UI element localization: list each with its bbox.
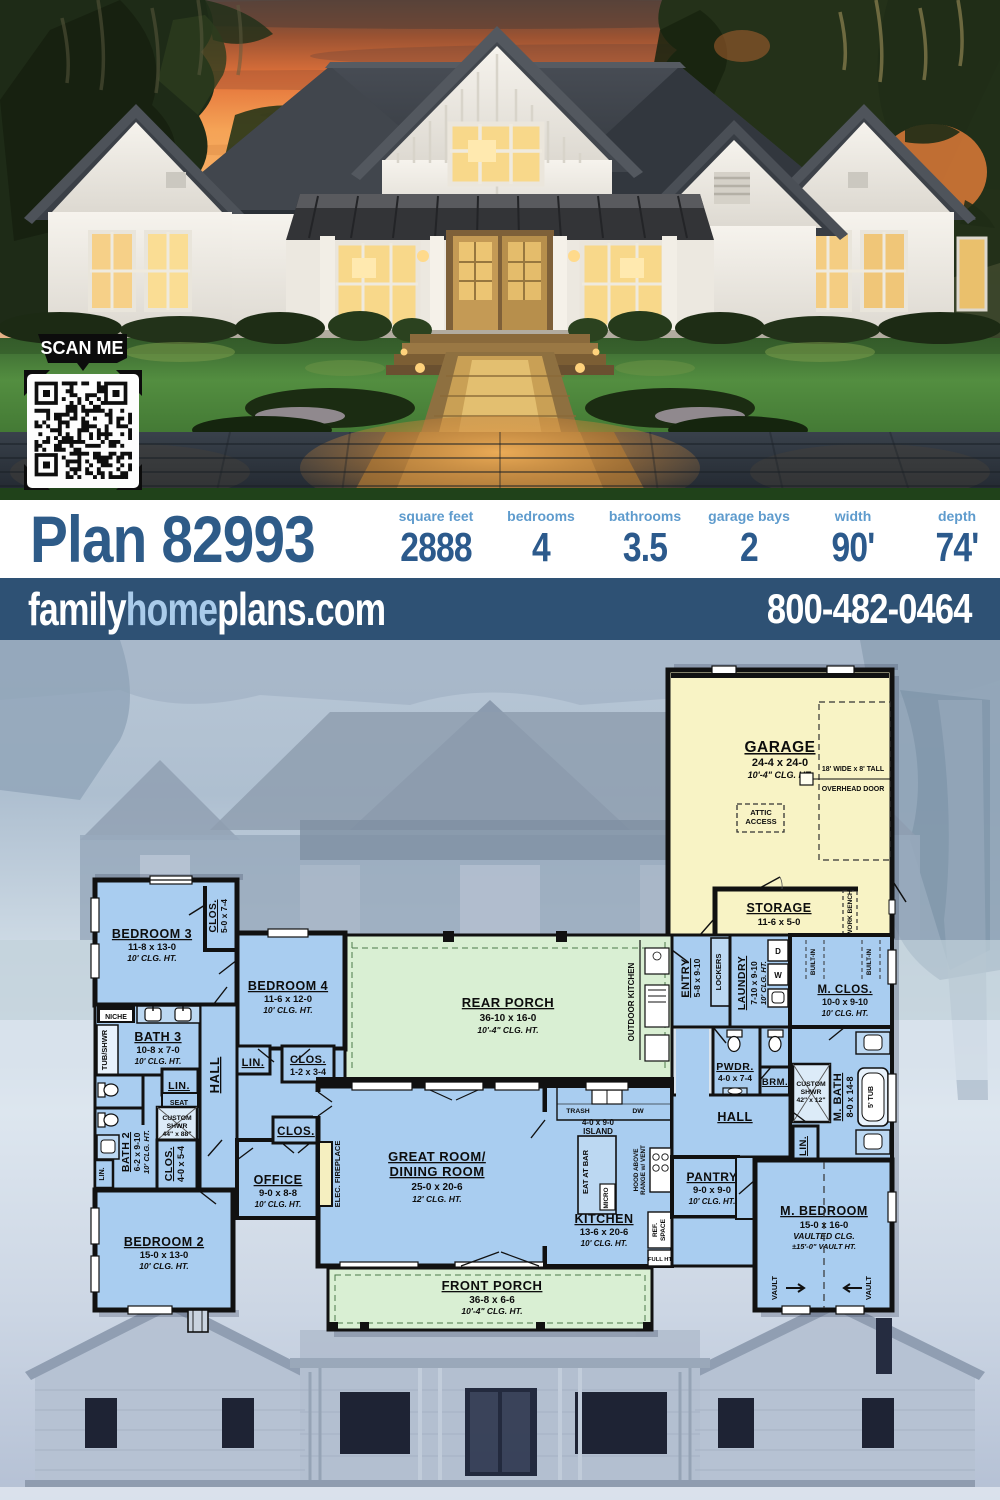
- svg-text:36-8 x 6-6: 36-8 x 6-6: [469, 1295, 515, 1306]
- svg-text:OFFICE: OFFICE: [254, 1173, 303, 1187]
- svg-text:PANTRY: PANTRY: [687, 1170, 738, 1184]
- svg-text:5-0 x 7-4: 5-0 x 7-4: [219, 899, 229, 933]
- svg-text:LIN.: LIN.: [242, 1057, 265, 1069]
- svg-text:MICRO: MICRO: [603, 1187, 610, 1208]
- svg-text:13-6 x 20-6: 13-6 x 20-6: [580, 1227, 629, 1238]
- svg-text:5' TUB: 5' TUB: [868, 1086, 875, 1108]
- svg-text:REF.: REF.: [652, 1223, 659, 1237]
- svg-text:BEDROOM 2: BEDROOM 2: [124, 1235, 204, 1249]
- svg-text:10'-4" CLG. HT.: 10'-4" CLG. HT.: [477, 1025, 538, 1035]
- svg-text:5-8 x 9-10: 5-8 x 9-10: [692, 958, 702, 997]
- svg-text:LIN.: LIN.: [99, 1167, 106, 1180]
- svg-text:6-2 x 9-10: 6-2 x 9-10: [132, 1132, 142, 1171]
- svg-text:10' CLG. HT.: 10' CLG. HT.: [135, 1057, 182, 1066]
- svg-text:STORAGE: STORAGE: [746, 901, 811, 915]
- svg-text:PWDR.: PWDR.: [716, 1061, 754, 1073]
- svg-text:7-10 x 9-10: 7-10 x 9-10: [749, 961, 759, 1005]
- svg-text:EAT AT BAR: EAT AT BAR: [581, 1149, 590, 1194]
- svg-text:FRONT PORCH: FRONT PORCH: [442, 1278, 543, 1293]
- svg-text:HOOD ABOVE: HOOD ABOVE: [633, 1149, 640, 1192]
- svg-text:WORK BENCH: WORK BENCH: [847, 890, 854, 936]
- svg-text:10' CLG. HT.: 10' CLG. HT.: [139, 1261, 189, 1271]
- svg-text:TRASH: TRASH: [566, 1108, 590, 1115]
- svg-text:BATH 3: BATH 3: [134, 1030, 181, 1044]
- svg-text:SHWR: SHWR: [801, 1089, 822, 1096]
- svg-text:10' CLG. HT.: 10' CLG. HT.: [822, 1009, 869, 1018]
- svg-text:4-0 x 5-4: 4-0 x 5-4: [176, 1146, 186, 1182]
- svg-text:36-10 x 16-0: 36-10 x 16-0: [480, 1013, 537, 1024]
- svg-text:REAR PORCH: REAR PORCH: [462, 995, 554, 1010]
- svg-text:GREAT ROOM/: GREAT ROOM/: [388, 1149, 486, 1164]
- svg-text:BATH 2: BATH 2: [120, 1132, 132, 1172]
- svg-text:42" x 12": 42" x 12": [796, 1097, 825, 1104]
- svg-text:10' CLG. HT.: 10' CLG. HT.: [255, 1200, 302, 1209]
- svg-text:CLOS.: CLOS.: [290, 1054, 326, 1066]
- svg-text:44" x 88": 44" x 88": [162, 1131, 191, 1138]
- svg-text:10' CLG. HT.: 10' CLG. HT.: [759, 961, 768, 1005]
- svg-text:SPACE: SPACE: [660, 1218, 667, 1241]
- svg-text:ENTRY: ENTRY: [680, 958, 692, 998]
- svg-text:8-0 x 14-8: 8-0 x 14-8: [845, 1076, 855, 1117]
- svg-text:VAULT: VAULT: [770, 1276, 779, 1300]
- svg-text:4-0 x 7-4: 4-0 x 7-4: [718, 1073, 752, 1083]
- svg-text:18' WIDE x 8' TALL: 18' WIDE x 8' TALL: [822, 766, 885, 773]
- svg-text:DINING ROOM: DINING ROOM: [389, 1164, 484, 1179]
- svg-text:GARAGE: GARAGE: [744, 739, 815, 756]
- svg-text:OVERHEAD DOOR: OVERHEAD DOOR: [822, 786, 885, 793]
- svg-text:ELEC. FIREPLACE: ELEC. FIREPLACE: [333, 1141, 342, 1208]
- svg-text:9-0 x 9-0: 9-0 x 9-0: [693, 1185, 731, 1196]
- svg-text:HALL: HALL: [717, 1110, 752, 1124]
- svg-text:10' CLG. HT.: 10' CLG. HT.: [127, 953, 177, 963]
- svg-text:1-2 x 3-4: 1-2 x 3-4: [290, 1067, 326, 1077]
- svg-text:10-8 x 7-0: 10-8 x 7-0: [136, 1045, 179, 1056]
- svg-text:M. BATH: M. BATH: [832, 1073, 844, 1122]
- svg-text:11-6 x 5-0: 11-6 x 5-0: [758, 917, 801, 928]
- svg-text:NICHE: NICHE: [105, 1014, 127, 1021]
- svg-text:M. CLOS.: M. CLOS.: [817, 984, 872, 996]
- svg-text:24-4 x 24-0: 24-4 x 24-0: [752, 757, 808, 769]
- svg-text:LIN.: LIN.: [798, 1136, 809, 1156]
- svg-text:TUB/SHWR: TUB/SHWR: [100, 1029, 109, 1070]
- svg-text:HALL: HALL: [207, 1057, 222, 1094]
- svg-text:BRM.: BRM.: [762, 1077, 788, 1088]
- svg-text:4-0 x 9-0: 4-0 x 9-0: [582, 1118, 615, 1127]
- svg-text:11-8 x 13-0: 11-8 x 13-0: [128, 942, 176, 953]
- svg-text:10'-4" CLG. HT.: 10'-4" CLG. HT.: [461, 1306, 522, 1316]
- svg-text:BUILT-IN: BUILT-IN: [866, 948, 873, 975]
- svg-text:D: D: [775, 947, 781, 956]
- svg-text:ATTIC: ATTIC: [750, 808, 772, 817]
- svg-text:ISLAND: ISLAND: [583, 1127, 613, 1136]
- svg-text:25-0 x 20-6: 25-0 x 20-6: [411, 1182, 463, 1193]
- svg-text:ACCESS: ACCESS: [745, 817, 776, 826]
- svg-text:15-0 x 13-0: 15-0 x 13-0: [140, 1250, 189, 1261]
- svg-text:11-6 x 12-0: 11-6 x 12-0: [264, 994, 312, 1005]
- svg-text:10-0 x 9-10: 10-0 x 9-10: [822, 997, 868, 1007]
- svg-text:LIN.: LIN.: [168, 1080, 190, 1092]
- svg-text:VAULT: VAULT: [864, 1276, 873, 1300]
- svg-text:12' CLG. HT.: 12' CLG. HT.: [412, 1194, 462, 1204]
- svg-text:DW: DW: [632, 1108, 644, 1115]
- svg-text:SHWR: SHWR: [167, 1123, 188, 1130]
- svg-text:10' CLG. HT.: 10' CLG. HT.: [689, 1197, 736, 1206]
- svg-text:9-0 x 8-8: 9-0 x 8-8: [259, 1188, 297, 1199]
- svg-text:LOCKERS: LOCKERS: [714, 954, 723, 991]
- svg-text:CLOS.: CLOS.: [163, 1147, 175, 1182]
- svg-text:FULL HT: FULL HT: [648, 1257, 673, 1263]
- svg-text:SCAN ME: SCAN ME: [40, 338, 123, 358]
- svg-text:BEDROOM 4: BEDROOM 4: [248, 979, 328, 993]
- svg-text:OUTDOOR KITCHEN: OUTDOOR KITCHEN: [627, 962, 636, 1041]
- svg-text:10' CLG. HT.: 10' CLG. HT.: [581, 1239, 628, 1248]
- svg-text:BEDROOM 3: BEDROOM 3: [112, 927, 192, 941]
- svg-text:LAUNDRY: LAUNDRY: [736, 956, 748, 1010]
- svg-text:CLOS.: CLOS.: [208, 899, 219, 932]
- svg-text:W: W: [774, 971, 782, 980]
- svg-text:CLOS.: CLOS.: [277, 1126, 315, 1138]
- svg-text:RANGE w/ VENT: RANGE w/ VENT: [640, 1145, 647, 1195]
- svg-text:10' CLG. HT.: 10' CLG. HT.: [263, 1005, 313, 1015]
- svg-text:CUSTOM: CUSTOM: [796, 1081, 826, 1088]
- svg-text:CUSTOM: CUSTOM: [162, 1115, 192, 1122]
- svg-text:BUILT-IN: BUILT-IN: [810, 948, 817, 975]
- svg-text:10' CLG. HT.: 10' CLG. HT.: [142, 1130, 151, 1174]
